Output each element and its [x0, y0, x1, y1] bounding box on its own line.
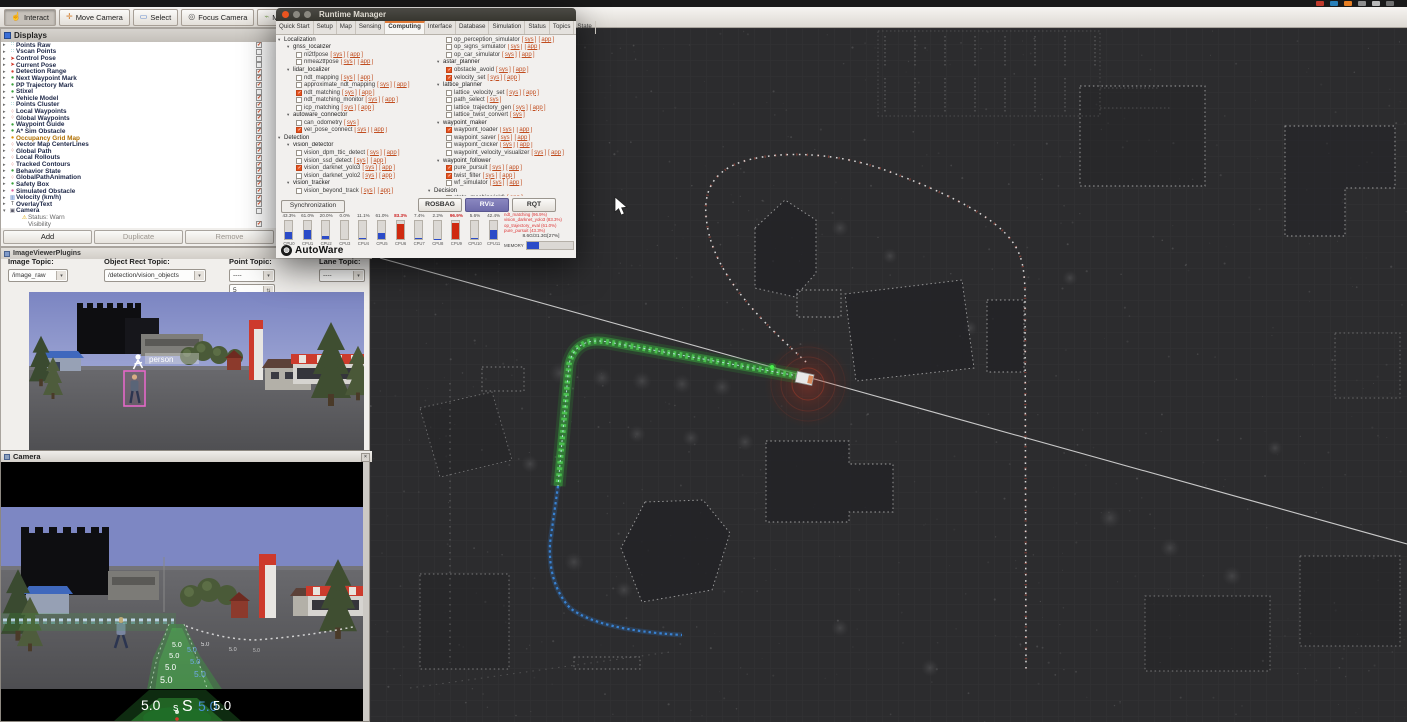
app-link[interactable]: [ app ]: [499, 173, 515, 179]
app-link[interactable]: [ app ]: [377, 188, 393, 194]
tab-interface[interactable]: Interface: [425, 21, 456, 34]
display-checkbox[interactable]: ✓: [256, 69, 262, 75]
display-type-icon: ➤: [9, 56, 16, 62]
node-label: waypoint_loader: [454, 127, 498, 133]
display-type-icon: ●: [9, 82, 16, 88]
group-localization[interactable]: ▾Localization: [278, 36, 426, 44]
maximize-icon[interactable]: [304, 11, 311, 18]
cpu-percent: 20.0%: [317, 213, 335, 218]
node-checkbox[interactable]: [446, 97, 452, 103]
image-viewer-plugins-title: ImageViewerPlugins: [13, 250, 81, 257]
node-waypoint-clicker[interactable]: waypoint_clicker[ sys ][ app ]: [428, 142, 574, 150]
node-waypoint-velocity-visualizer[interactable]: waypoint_velocity_visualizer[ sys ][ app…: [428, 149, 574, 157]
app-link[interactable]: [ app ]: [516, 127, 532, 133]
node-checkbox[interactable]: [296, 97, 302, 103]
node-checkbox[interactable]: [446, 173, 452, 179]
tray-icon[interactable]: [1344, 1, 1352, 6]
group-lattice-planner[interactable]: ▾lattice_planner: [428, 81, 574, 89]
node-checkbox[interactable]: [296, 158, 302, 164]
rviz-button[interactable]: RViz: [465, 198, 509, 212]
app-link[interactable]: [ app ]: [394, 82, 410, 88]
sys-link[interactable]: [ sys ]: [496, 67, 511, 73]
node-vision-beyond-track[interactable]: vision_beyond_track[ sys ][ app ]: [278, 187, 426, 195]
node-obstacle-avoid[interactable]: obstacle_avoid[ sys ][ app ]: [428, 66, 574, 74]
app-link[interactable]: [ app ]: [530, 105, 546, 111]
group-vision-tracker[interactable]: ▾vision_tracker: [278, 179, 426, 187]
svg-text:5.0: 5.0: [141, 697, 161, 713]
display-type-icon: ⁘: [9, 155, 16, 161]
sys-link[interactable]: [ sys ]: [522, 37, 537, 43]
sys-link[interactable]: [ sys ]: [487, 75, 502, 81]
node-checkbox[interactable]: [446, 142, 452, 148]
cpu-percent: 61.0%: [299, 213, 317, 218]
node-label: path_select: [454, 97, 485, 103]
display-checkbox[interactable]: ✓: [256, 109, 262, 115]
tool-label: Move Camera: [76, 13, 123, 22]
node-icp-matching[interactable]: icp_matching[ sys ][ app ]: [278, 104, 426, 112]
sys-link[interactable]: [ sys ]: [361, 188, 376, 194]
node-ndt-mapping[interactable]: ndt_mapping[ sys ][ app ]: [278, 74, 426, 82]
node-lattice-trajectory-gen[interactable]: lattice_trajectory_gen[ sys ][ app ]: [428, 104, 574, 112]
sys-link[interactable]: [ sys ]: [354, 127, 369, 133]
node-label: obstacle_avoid: [454, 67, 494, 73]
node-state-machine-old-[interactable]: state_machine(old)[ app ]: [428, 194, 574, 196]
display-type-icon: ▣: [9, 208, 16, 214]
sys-link[interactable]: [ sys ]: [489, 165, 504, 171]
group-astar-planner[interactable]: ▾astar_planner: [428, 59, 574, 67]
sys-link[interactable]: [ sys ]: [362, 165, 377, 171]
cpu-bar: [358, 220, 367, 240]
node-label: vision_darknet_yolo3: [304, 165, 360, 171]
app-link[interactable]: [ app ]: [519, 52, 535, 58]
display-checkbox[interactable]: ✓: [256, 148, 262, 154]
tray-icon[interactable]: [1330, 1, 1338, 6]
display-checkbox[interactable]: [256, 208, 262, 214]
group-decision[interactable]: ▾Decision: [428, 187, 574, 195]
app-link[interactable]: [ app ]: [357, 75, 373, 81]
tab-topics[interactable]: Topics: [550, 21, 575, 34]
node-vision-dpm-ttic-detect[interactable]: vision_dpm_ttic_detect[ sys ][ app ]: [278, 149, 426, 157]
display-type-icon: ∷: [9, 42, 16, 48]
app-link[interactable]: [ app ]: [371, 127, 387, 133]
node-label: waypoint_clicker: [454, 142, 498, 148]
runtime-manager-titlebar[interactable]: Runtime Manager: [276, 8, 576, 21]
display-checkbox[interactable]: ✓: [256, 115, 262, 121]
display-type-icon: ●: [9, 69, 16, 75]
node-checkbox[interactable]: [446, 112, 452, 118]
node-label: gnss_localizer: [293, 44, 331, 50]
node-label: ndt_mapping: [304, 75, 339, 81]
svg-text:s: s: [173, 702, 179, 714]
node-vision-ssd-detect[interactable]: vision_ssd_detect[ sys ][ app ]: [278, 157, 426, 165]
display-checkbox[interactable]: ✓: [256, 168, 262, 174]
node-op-car-simulator[interactable]: op_car_simulator[ sys ][ app ]: [428, 51, 574, 59]
node-label: vision_tracker: [293, 180, 330, 186]
tool-icon: ◎: [188, 13, 195, 21]
display-checkbox[interactable]: ✓: [256, 181, 262, 187]
node-vel-pose-connect[interactable]: vel_pose_connect[ sys ][ app ]: [278, 127, 426, 135]
app-link[interactable]: [ app ]: [507, 195, 523, 196]
node-label: can_odometry: [304, 120, 342, 126]
sys-link[interactable]: [ sys ]: [344, 120, 359, 126]
app-link[interactable]: [ app ]: [513, 67, 529, 73]
add-button[interactable]: Add: [3, 230, 92, 244]
node-checkbox[interactable]: [446, 105, 452, 111]
tab-sensing[interactable]: Sensing: [356, 21, 385, 34]
runtime-manager-tabs: Quick StartSetupMapSensingComputingInter…: [276, 21, 576, 35]
node-checkbox[interactable]: [446, 52, 452, 58]
node-label: approximate_ndt_mapping: [304, 82, 375, 88]
cpu-percent: 83.3%: [392, 213, 410, 218]
node-label: nl2tfpose: [304, 52, 328, 58]
app-link[interactable]: [ app ]: [370, 158, 386, 164]
svg-text:5.0: 5.0: [160, 675, 173, 685]
sys-link[interactable]: [ sys ]: [365, 97, 380, 103]
display-type-icon: ●: [9, 181, 16, 187]
app-link[interactable]: [ app ]: [548, 150, 564, 156]
app-link[interactable]: [ app ]: [506, 165, 522, 171]
sys-link[interactable]: [ sys ]: [487, 97, 502, 103]
node-label: velocity_set: [454, 75, 485, 81]
close-icon[interactable]: [282, 11, 289, 18]
node-can-odometry[interactable]: can_odometry[ sys ]: [278, 119, 426, 127]
display-type-icon: ⁘: [9, 162, 16, 168]
sys-link[interactable]: [ sys ]: [377, 82, 392, 88]
node-nl2tfpose[interactable]: nl2tfpose[ sys ][ app ]: [278, 51, 426, 59]
memory-bar-row: MEMORY: [504, 241, 574, 249]
display-checkbox[interactable]: ✓: [256, 82, 262, 88]
remove-button[interactable]: Remove: [185, 230, 274, 244]
node-wf-simulator[interactable]: wf_simulator[ sys ][ app ]: [428, 179, 574, 187]
tray-icon[interactable]: [1372, 1, 1380, 6]
cpu-bar: [433, 220, 442, 240]
node-checkbox[interactable]: [446, 44, 452, 50]
node-label: astar_planner: [443, 59, 480, 65]
app-link[interactable]: [ app ]: [382, 97, 398, 103]
app-link[interactable]: [ app ]: [524, 44, 540, 50]
object-rect-topic-value: /detection/vision_objects: [108, 272, 179, 279]
tray-icon[interactable]: [1358, 1, 1366, 6]
display-type-icon: ●: [9, 75, 16, 81]
display-type-icon: ●: [9, 168, 16, 174]
tab-map[interactable]: Map: [337, 21, 356, 34]
svg-text:5.0: 5.0: [194, 669, 206, 679]
node-waypoint-loader[interactable]: waypoint_loader[ sys ][ app ]: [428, 127, 574, 135]
node-label: waypoint_maker: [443, 120, 487, 126]
svg-text:5.0: 5.0: [187, 647, 197, 654]
app-link[interactable]: [ app ]: [506, 180, 522, 186]
node-checkbox[interactable]: [446, 180, 452, 186]
display-type-icon: ▥: [9, 195, 16, 201]
sys-link[interactable]: [ sys ]: [483, 173, 498, 179]
display-checkbox[interactable]: ✓: [256, 201, 262, 207]
node-checkbox[interactable]: [446, 165, 452, 171]
app-link[interactable]: [ app ]: [358, 105, 374, 111]
group-waypoint-follower[interactable]: ▾waypoint_follower: [428, 157, 574, 165]
big-speed-row: 5.0 s S 5.0 5.0: [141, 697, 231, 715]
node-checkbox[interactable]: [446, 90, 452, 96]
svg-text:5.0: 5.0: [172, 642, 182, 649]
displays-panel-header[interactable]: Displays: [1, 29, 279, 42]
node-label: op_perception_simulator: [454, 37, 520, 43]
synchronization-checkbox[interactable]: Synchronization: [281, 200, 345, 213]
cpu-bar: [470, 220, 479, 240]
cpu-bar: [284, 220, 293, 240]
node-vision-darknet-yolo3[interactable]: vision_darknet_yolo3[ sys ][ app ]: [278, 164, 426, 172]
tool-icon: ☝: [11, 13, 21, 21]
sys-link[interactable]: [ sys ]: [330, 52, 345, 58]
app-link[interactable]: [ app ]: [379, 173, 395, 179]
svg-text:5.0: 5.0: [201, 642, 210, 648]
node-checkbox[interactable]: [296, 75, 302, 81]
sys-link[interactable]: [ sys ]: [367, 150, 382, 156]
app-link[interactable]: [ app ]: [523, 90, 539, 96]
group-waypoint-maker[interactable]: ▾waypoint_maker: [428, 119, 574, 127]
node-checkbox[interactable]: [446, 150, 452, 156]
cpu-label: CPU7: [410, 241, 428, 246]
node-vision-darknet-yolo2[interactable]: vision_darknet_yolo2[ sys ][ app ]: [278, 172, 426, 180]
duplicate-button[interactable]: Duplicate: [94, 230, 183, 244]
cpu-percent: 0.0%: [336, 213, 354, 218]
cpu-bar-fill: [304, 230, 311, 239]
app-link[interactable]: [ app ]: [517, 142, 533, 148]
node-lattice-twist-convert[interactable]: lattice_twist_convert[ sys ]: [428, 111, 574, 119]
group-lidar-localizer[interactable]: ▾lidar_localizer: [278, 66, 426, 74]
node-checkbox[interactable]: [446, 195, 452, 196]
app-link[interactable]: [ app ]: [384, 150, 400, 156]
node-checkbox[interactable]: [446, 135, 452, 141]
display-checkbox[interactable]: ✓: [256, 122, 262, 128]
tab-setup[interactable]: Setup: [314, 21, 337, 34]
sys-link[interactable]: [ sys ]: [342, 90, 357, 96]
rqt-button[interactable]: RQT: [512, 198, 556, 212]
node-op-signs-simulator[interactable]: op_signs_simulator[ sys ][ app ]: [428, 44, 574, 52]
sys-link[interactable]: [ sys ]: [508, 44, 523, 50]
tab-state[interactable]: State: [574, 21, 595, 34]
cpu-percent: 5.6%: [466, 213, 484, 218]
sys-link[interactable]: [ sys ]: [502, 52, 517, 58]
node-label: pure_pursuit: [454, 165, 487, 171]
point-topic-select[interactable]: ----▾: [229, 269, 275, 282]
group-vision-detector[interactable]: ▾vision_detector: [278, 142, 426, 150]
node-approximate-ndt-mapping[interactable]: approximate_ndt_mapping[ sys ][ app ]: [278, 81, 426, 89]
sys-link[interactable]: [ sys ]: [513, 105, 528, 111]
node-label: waypoint_saver: [454, 135, 496, 141]
node-pure-pursuit[interactable]: pure_pursuit[ sys ][ app ]: [428, 164, 574, 172]
sys-link[interactable]: [ sys ]: [341, 59, 356, 65]
node-label: vision_ssd_detect: [304, 158, 352, 164]
memory-bar-fill: [527, 242, 540, 249]
sys-link[interactable]: [ sys ]: [531, 150, 546, 156]
sys-link[interactable]: [ sys ]: [510, 112, 525, 118]
point-topic-value: ----: [233, 272, 242, 279]
cpu-bar: [414, 220, 423, 240]
cpu-label: CPU6: [392, 241, 410, 246]
tool-icon: ⌁: [264, 13, 269, 21]
node-checkbox[interactable]: [446, 127, 452, 133]
cpu-label: CPU10: [466, 241, 484, 246]
displays-icon: [4, 32, 11, 39]
node-checkbox[interactable]: [446, 67, 452, 73]
node-checkbox[interactable]: [296, 90, 302, 96]
cpu-bar-fill: [490, 230, 497, 239]
building: [1300, 556, 1400, 646]
node-op-perception-simulator[interactable]: op_perception_simulator[ sys ][ app ]: [428, 36, 574, 44]
cpu-percent: 11.1%: [354, 213, 372, 218]
display-type-icon: ●: [9, 122, 16, 128]
tool-move-camera[interactable]: ✛Move Camera: [59, 9, 130, 26]
minimize-icon[interactable]: [293, 11, 300, 18]
group-detection[interactable]: ▾Detection: [278, 134, 426, 142]
cpu-bar: [340, 220, 349, 240]
node-velocity-set[interactable]: velocity_set[ sys ][ app ]: [428, 74, 574, 82]
tool-icon: ✛: [66, 13, 73, 21]
cpu-bar-fill: [378, 233, 385, 239]
node-label: twist_filter: [454, 173, 481, 179]
cpu-bar: [321, 220, 330, 240]
sys-link[interactable]: [ sys ]: [498, 135, 513, 141]
camera-image: 5.0 5.0 5.0 5.0 5.0 5.0 5.0 5.0 5.0 5.0 …: [1, 462, 363, 721]
autoware-logo-text: AutoWare: [295, 245, 343, 256]
dropdown-arrow-icon: ▾: [353, 271, 363, 280]
node-waypoint-saver[interactable]: waypoint_saver[ sys ][ app ]: [428, 134, 574, 142]
display-checkbox[interactable]: [256, 56, 262, 62]
cpu-label: CPU11: [485, 241, 503, 246]
app-link[interactable]: [ app ]: [514, 135, 530, 141]
display-checkbox[interactable]: ✓: [256, 42, 262, 48]
tool-select[interactable]: ▭Select: [133, 9, 178, 26]
node-label: vision_detector: [293, 142, 333, 148]
app-link[interactable]: [ app ]: [504, 75, 520, 81]
tool-interact[interactable]: ☝Interact: [4, 9, 56, 26]
cpu-bar: [377, 220, 386, 240]
display-checkbox[interactable]: ✓: [256, 142, 262, 148]
display-type-icon: ⁘: [9, 115, 16, 121]
displays-tree: ▸∷Points Raw✓▸∷Vscan Points▸➤Control Pos…: [1, 42, 276, 228]
node-label: state_machine(old): [454, 195, 505, 196]
node-label: lattice_twist_convert: [454, 112, 508, 118]
display-checkbox[interactable]: [256, 49, 262, 55]
displays-buttons: AddDuplicateRemove: [1, 228, 276, 246]
tab-simulation[interactable]: Simulation: [489, 21, 525, 34]
camera-window-close-icon[interactable]: ×: [361, 453, 370, 462]
image-viewer-plugins-panel: ImageViewerPlugins Image Topic: Object R…: [0, 247, 370, 455]
building: [1080, 86, 1205, 186]
node-checkbox[interactable]: [296, 165, 302, 171]
display-type-icon: ●: [9, 128, 16, 134]
node-checkbox[interactable]: [446, 37, 452, 43]
node-label: waypoint_velocity_visualizer: [454, 150, 529, 156]
cpu-percent: 61.0%: [373, 213, 391, 218]
display-checkbox[interactable]: ✓: [256, 135, 262, 141]
node-nmea2tfpose[interactable]: nmea2tfpose[ sys ][ app ]: [278, 59, 426, 67]
display-type-icon: ●: [9, 135, 16, 141]
display-checkbox[interactable]: ✓: [256, 75, 262, 81]
camera-window-titlebar[interactable]: Camera ×: [1, 451, 372, 462]
app-link[interactable]: [ app ]: [379, 165, 395, 171]
camera-window: Camera ×: [0, 450, 370, 722]
group-autoware-connector[interactable]: ▾autoware_connector: [278, 111, 426, 119]
tab-quick-start[interactable]: Quick Start: [276, 21, 314, 34]
sys-link[interactable]: [ sys ]: [354, 158, 369, 164]
display-checkbox[interactable]: [256, 89, 262, 95]
node-ndt-matching-monitor[interactable]: ndt_matching_monitor[ sys ][ app ]: [278, 96, 426, 104]
node-ndt-matching[interactable]: ndt_matching[ sys ][ app ]: [278, 89, 426, 97]
object-rect-topic-select[interactable]: /detection/vision_objects▾: [104, 269, 206, 282]
node-checkbox[interactable]: [296, 52, 302, 58]
display-checkbox[interactable]: ✓: [256, 102, 262, 108]
sys-link[interactable]: [ sys ]: [341, 105, 356, 111]
display-checkbox[interactable]: ✓: [256, 155, 262, 161]
node-lattice-velocity-set[interactable]: lattice_velocity_set[ sys ][ app ]: [428, 89, 574, 97]
cpu-bar-fill: [322, 236, 329, 239]
display-checkbox[interactable]: ✓: [256, 188, 262, 194]
runtime-manager-window: Runtime Manager Quick StartSetupMapSensi…: [276, 8, 576, 258]
app-link[interactable]: [ app ]: [347, 52, 363, 58]
node-checkbox[interactable]: [296, 105, 302, 111]
node-checkbox[interactable]: [296, 59, 302, 65]
sys-link[interactable]: [ sys ]: [341, 75, 356, 81]
rosbag-button[interactable]: ROSBAG: [418, 198, 462, 212]
lane-topic-select[interactable]: ----▾: [319, 269, 365, 282]
cpu-bar-fill: [285, 232, 292, 239]
display-checkbox[interactable]: ✓: [256, 95, 262, 101]
tray-icon[interactable]: [1316, 1, 1324, 6]
app-link[interactable]: [ app ]: [359, 90, 375, 96]
node-checkbox[interactable]: [296, 150, 302, 156]
memory-label: MEMORY: [504, 243, 524, 248]
point-topic-label: Point Topic:: [229, 257, 272, 266]
node-checkbox[interactable]: [296, 173, 302, 179]
display-type-icon: ⁘: [9, 175, 16, 181]
tool-focus-camera[interactable]: ◎Focus Camera: [181, 9, 254, 26]
tab-computing[interactable]: Computing: [385, 21, 425, 34]
node-checkbox[interactable]: [296, 82, 302, 88]
sys-link[interactable]: [ sys ]: [506, 90, 521, 96]
display-checkbox[interactable]: ✓: [256, 221, 262, 227]
sys-link[interactable]: [ sys ]: [500, 127, 515, 133]
node-checkbox[interactable]: [446, 75, 452, 81]
display-item-visibility[interactable]: Visibility✓: [1, 221, 276, 228]
app-link[interactable]: [ app ]: [538, 37, 554, 43]
tab-database[interactable]: Database: [456, 21, 490, 34]
node-checkbox[interactable]: [296, 127, 302, 133]
display-checkbox[interactable]: [256, 62, 262, 68]
display-type-icon: ⁘: [9, 148, 16, 154]
display-checkbox[interactable]: ✓: [256, 195, 262, 201]
display-checkbox[interactable]: ✓: [256, 162, 262, 168]
node-path-select[interactable]: path_select[ sys ]: [428, 96, 574, 104]
cpu-bar-fill: [452, 223, 459, 239]
app-link[interactable]: [ app ]: [357, 59, 373, 65]
group-gnss-localizer[interactable]: ▾gnss_localizer: [278, 44, 426, 52]
system-tray: [1316, 0, 1406, 7]
display-type-icon: T: [9, 201, 16, 207]
tab-status[interactable]: Status: [525, 21, 550, 34]
sys-link[interactable]: [ sys ]: [362, 173, 377, 179]
display-checkbox[interactable]: ✓: [256, 175, 262, 181]
autoware-logo-icon: ◍: [281, 245, 292, 256]
node-checkbox[interactable]: [296, 120, 302, 126]
node-checkbox[interactable]: [296, 188, 302, 194]
node-twist-filter[interactable]: twist_filter[ sys ][ app ]: [428, 172, 574, 180]
image-topic-select[interactable]: /image_raw▾: [8, 269, 68, 282]
display-checkbox[interactable]: ✓: [256, 128, 262, 134]
sys-link[interactable]: [ sys ]: [500, 142, 515, 148]
cpu-label: CPU4: [354, 241, 372, 246]
sys-link[interactable]: [ sys ]: [490, 180, 505, 186]
tray-icon[interactable]: [1386, 1, 1394, 6]
